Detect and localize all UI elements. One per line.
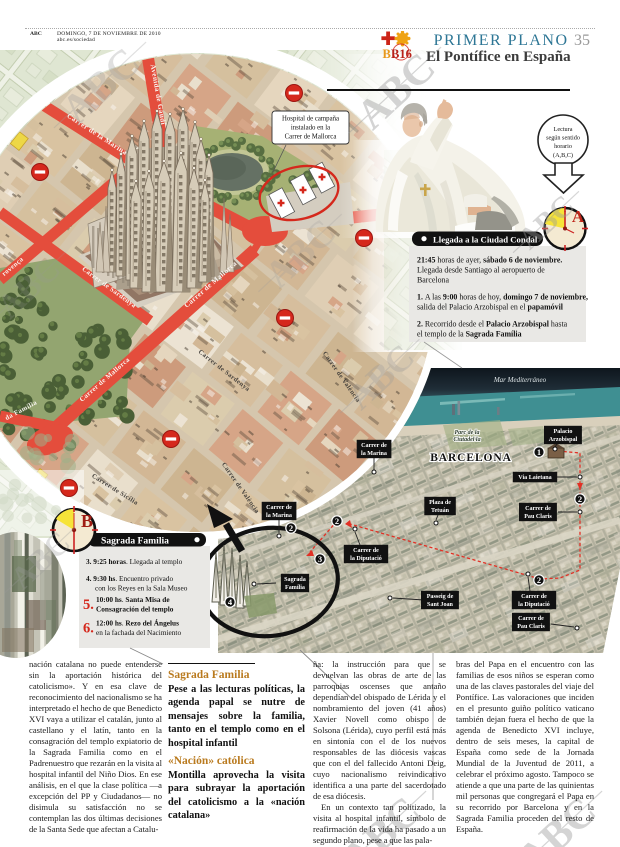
svg-text:Carrer de: Carrer de [525,506,551,512]
svg-text:2: 2 [289,523,293,533]
svg-text:en la fachada del Nacimiento: en la fachada del Nacimiento [96,628,181,637]
svg-text:horario: horario [554,143,572,150]
svg-text:B: B [81,511,93,531]
svg-text:Ciutadel·la: Ciutadel·la [453,437,480,443]
svg-text:1: 1 [537,447,541,457]
svg-text:Carrer de: Carrer de [361,443,387,449]
svg-text:Sant Joan: Sant Joan [427,602,454,608]
svg-text:el templo de la Sagrada Famíli: el templo de la Sagrada Família [417,330,522,339]
svg-text:Carrer de: Carrer de [353,548,379,554]
svg-text:Parc de la: Parc de la [455,430,480,436]
svg-text:6.: 6. [83,621,94,637]
svg-text:2: 2 [537,575,541,585]
svg-text:5.: 5. [83,597,94,613]
svg-text:Família: Família [285,585,305,591]
svg-text:Palacio: Palacio [554,429,573,435]
svg-text:Arzobispal: Arzobispal [549,437,578,443]
svg-text:instalado en la: instalado en la [291,125,330,132]
svg-text:Via Laietana: Via Laietana [518,475,551,481]
svg-text:Sagrada Família: Sagrada Família [101,535,169,546]
svg-text:2. Recorrido desde el Palacio: 2. Recorrido desde el Palacio Arzobispal… [417,320,568,329]
svg-text:Hospital de campaña: Hospital de campaña [282,115,339,122]
svg-text:Sagrada: Sagrada [284,577,306,583]
svg-text:3. 9:25 horas. Llegada al temp: 3. 9:25 horas. Llegada al templo [86,557,183,566]
svg-text:la Marina: la Marina [266,513,292,519]
svg-text:con los Reyes en la Sala Museo: con los Reyes en la Sala Museo [95,584,188,593]
svg-text:Pau Claris: Pau Claris [524,514,552,520]
svg-text:B: B [383,47,391,61]
svg-text:Pau Claris: Pau Claris [517,624,545,630]
svg-text:salida del Palacio Arzobispal: salida del Palacio Arzobispal en el papa… [417,303,564,312]
svg-text:Consagración del templo: Consagración del templo [96,605,174,614]
svg-text:Plaza de: Plaza de [429,500,451,506]
svg-text:Carrer de: Carrer de [521,594,547,600]
svg-text:la Diputació: la Diputació [518,602,550,608]
svg-text:4. 9:30 hs. Encuentro privado: 4. 9:30 hs. Encuentro privado [86,574,174,583]
svg-text:2: 2 [335,516,339,526]
svg-text:Carrer de: Carrer de [518,616,544,622]
svg-text:(A,B,C): (A,B,C) [553,152,573,159]
svg-text:Tetuán: Tetuán [431,508,450,514]
svg-text:Passeig de: Passeig de [427,594,454,600]
svg-text:Llegada desde Santiago al aero: Llegada desde Santiago al aeropuerto de [417,266,545,275]
svg-text:21:45 horas de ayer, sábado 6: 21:45 horas de ayer, sábado 6 de noviemb… [417,256,562,265]
svg-text:la Diputació: la Diputació [350,556,382,562]
svg-text:3: 3 [318,554,322,564]
svg-text:12:00 hs. Rezo del Ángelus: 12:00 hs. Rezo del Ángelus [96,618,179,628]
svg-text:B16: B16 [391,47,412,61]
svg-text:Carrer de Mallorca: Carrer de Mallorca [285,134,337,141]
svg-text:Mar Mediterráneo: Mar Mediterráneo [493,376,547,384]
svg-text:según sentido: según sentido [546,135,580,142]
svg-text:BARCELONA: BARCELONA [430,452,512,464]
svg-text:la Marina: la Marina [361,451,387,457]
svg-text:Carrer de: Carrer de [266,505,292,511]
svg-text:2: 2 [578,494,582,504]
svg-text:10:00 hs. Santa Misa de: 10:00 hs. Santa Misa de [96,595,170,604]
svg-text:1. A las 9:00 horas de hoy, do: 1. A las 9:00 horas de hoy, domingo 7 de… [417,293,588,302]
svg-text:Barcelona: Barcelona [417,276,449,285]
svg-text:Lectura: Lectura [554,126,573,133]
